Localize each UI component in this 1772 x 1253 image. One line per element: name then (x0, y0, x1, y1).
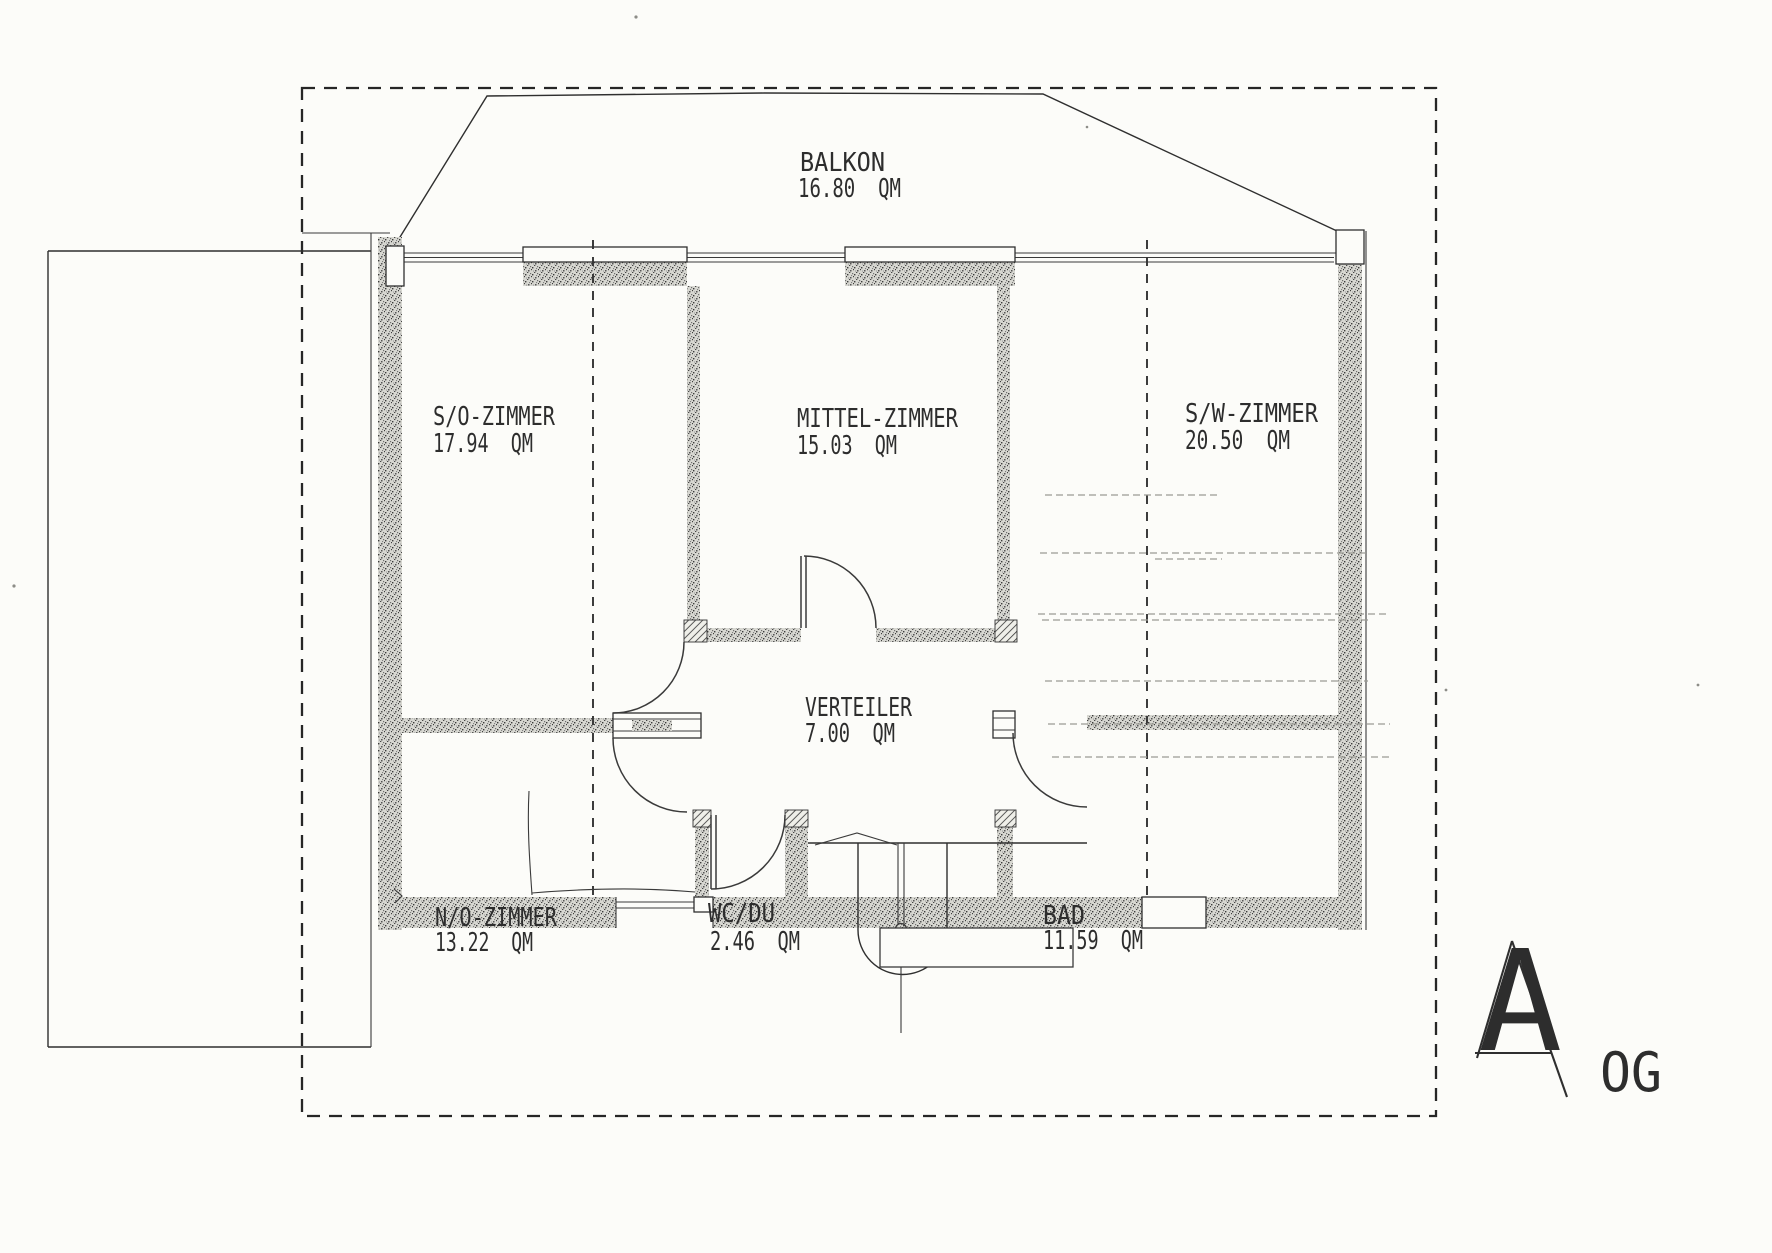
room-area: 16.80 QM (798, 174, 901, 204)
wall-block-5 (995, 810, 1016, 827)
corner-post-right (1336, 230, 1364, 264)
exterior-wall-right (1338, 234, 1362, 930)
wall-sw-bad-divider (1087, 715, 1338, 730)
floor-label-og: OG (1600, 1041, 1662, 1104)
plan-letter-a-text: A (1478, 921, 1562, 1084)
corner-post-left (386, 246, 404, 286)
threshold-bad (993, 711, 1015, 738)
floorplan-canvas: BALKON 16.80 QM S/O-ZIMMER 17.94 QM MITT… (0, 0, 1772, 1253)
wall-so-mittel (687, 286, 700, 626)
room-area: 7.00 QM (805, 719, 895, 749)
window-sill-1 (523, 247, 687, 262)
wall-block-2 (995, 620, 1017, 642)
plan-letter-a: A (1475, 921, 1567, 1097)
wall-mittel-bottom-left (700, 628, 801, 642)
room-name: MITTEL-ZIMMER (797, 404, 958, 434)
window-sill-2 (845, 247, 1015, 262)
scanned-floorplan-sheet: BALKON 16.80 QM S/O-ZIMMER 17.94 QM MITT… (0, 0, 1772, 1253)
wall-wcdu-left (695, 827, 709, 897)
room-area: 17.94 QM (433, 429, 533, 459)
room-area: 2.46 QM (710, 927, 800, 957)
wall-bad-left (997, 827, 1013, 897)
room-area: 20.50 QM (1185, 426, 1290, 456)
room-name: S/W-ZIMMER (1185, 399, 1318, 429)
bottom-door-opening (1142, 897, 1206, 928)
room-area: 15.03 QM (797, 431, 897, 461)
wall-so-no-divider (402, 718, 613, 733)
top-wall-segment-2 (845, 262, 1015, 286)
wall-block-3 (693, 810, 711, 827)
wall-block-4 (785, 810, 808, 827)
room-area: 13.22 QM (435, 928, 533, 958)
room-name: S/O-ZIMMER (433, 402, 555, 432)
room-area: 11.59 QM (1043, 926, 1143, 956)
top-wall-segment-1 (523, 262, 687, 286)
wall-mittel-sw (997, 286, 1010, 626)
room-name: WC/DU (708, 899, 775, 929)
wall-mittel-bottom-right (876, 628, 997, 642)
wall-block-1 (684, 620, 707, 642)
exterior-wall-left (378, 237, 402, 930)
